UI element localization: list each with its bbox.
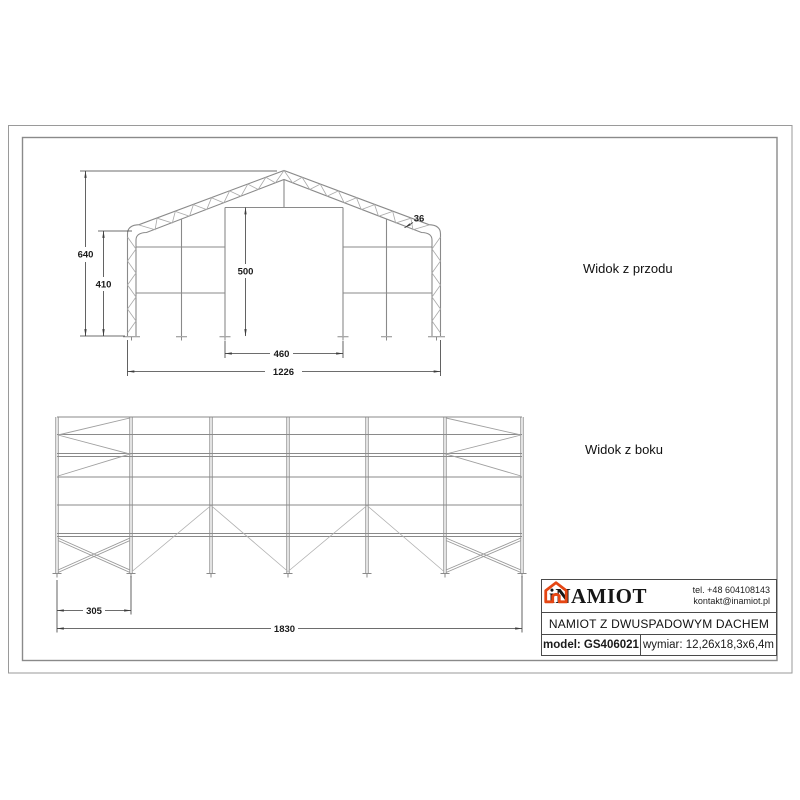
drawing-svg: 640 410 500 460 1226 36 Widok z przodu xyxy=(0,0,800,800)
product-name: NAMIOT Z DWUSPADOWYM DACHEM xyxy=(542,613,776,635)
front-feet xyxy=(123,337,445,341)
dim-total-width: 1226 xyxy=(273,367,294,378)
dim-total-height: 640 xyxy=(78,250,94,261)
overall-dimensions: wymiar: 12,26x18,3x6,4m xyxy=(641,635,776,655)
side-feet xyxy=(53,574,527,578)
brand-logo: iNAMIOT xyxy=(549,586,647,607)
front-view: 640 410 500 460 1226 36 Widok z przodu xyxy=(78,171,673,379)
model-number: model: GS406021 xyxy=(542,635,641,655)
front-view-label: Widok z przodu xyxy=(583,261,673,276)
tent-logo-icon xyxy=(542,580,570,605)
side-columns xyxy=(56,417,523,573)
contact-info: tel. +48 604108143 kontakt@inamiot.pl xyxy=(693,585,770,607)
dim-truss-depth: 36 xyxy=(414,214,425,225)
title-block-header-row: iNAMIOT tel. +48 604108143 kontakt@inami… xyxy=(542,580,776,613)
dim-end-bay: 305 xyxy=(86,606,103,617)
drawing-sheet: 640 410 500 460 1226 36 Widok z przodu xyxy=(0,0,800,800)
dim-total-length: 1830 xyxy=(274,624,295,635)
side-v-braces xyxy=(132,506,444,572)
dim-door-width: 460 xyxy=(274,349,290,360)
title-block: iNAMIOT tel. +48 604108143 kontakt@inami… xyxy=(541,579,777,656)
phone-text: tel. +48 604108143 xyxy=(693,585,770,596)
dim-eave-height: 410 xyxy=(96,280,112,291)
title-block-model-row: model: GS406021 wymiar: 12,26x18,3x6,4m xyxy=(542,635,776,655)
front-frame-members xyxy=(136,180,432,337)
email-text: kontakt@inamiot.pl xyxy=(693,596,770,607)
dim-door-height: 500 xyxy=(238,267,254,278)
side-view-label: Widok z boku xyxy=(585,442,663,457)
